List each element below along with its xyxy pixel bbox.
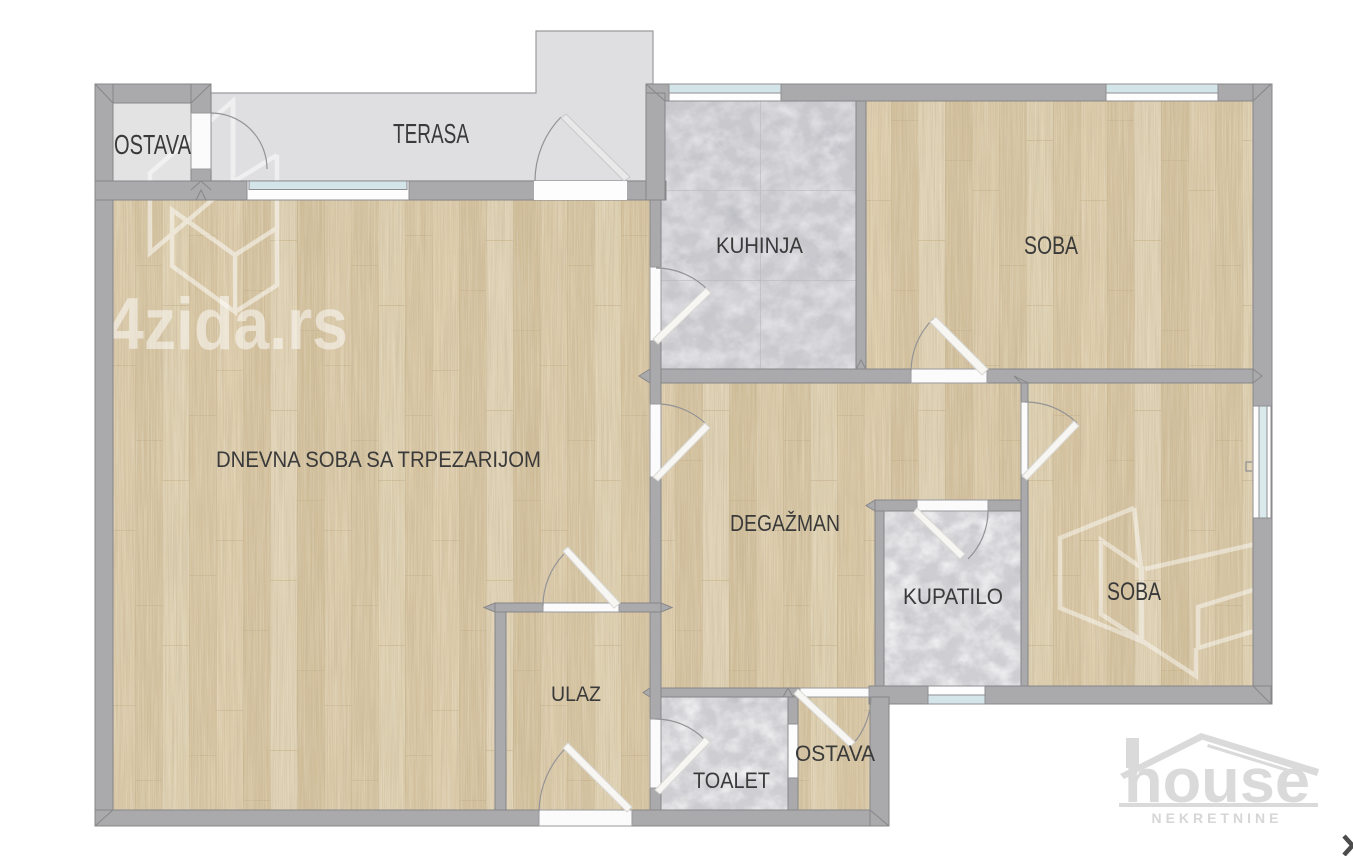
svg-text:OSTAVA: OSTAVA bbox=[795, 741, 875, 766]
svg-text:SOBA: SOBA bbox=[1024, 232, 1078, 260]
svg-text:KUPATILO: KUPATILO bbox=[903, 584, 1003, 609]
svg-text:DNEVNA SOBA SA TRPEZARIJOM: DNEVNA SOBA SA TRPEZARIJOM bbox=[216, 447, 541, 472]
svg-text:DEGAŽMAN: DEGAŽMAN bbox=[730, 510, 840, 536]
svg-text:NEKRETNINE: NEKRETNINE bbox=[1151, 810, 1282, 826]
svg-text:4zida.rs: 4zida.rs bbox=[108, 284, 348, 365]
svg-text:OSTAVA: OSTAVA bbox=[114, 129, 191, 160]
svg-text:SOBA: SOBA bbox=[1107, 578, 1161, 606]
svg-text:house: house bbox=[1124, 747, 1310, 816]
svg-text:TOALET: TOALET bbox=[693, 768, 770, 793]
svg-text:ULAZ: ULAZ bbox=[551, 683, 601, 706]
svg-text:TERASA: TERASA bbox=[393, 118, 469, 149]
svg-text:KUHINJA: KUHINJA bbox=[716, 233, 803, 258]
